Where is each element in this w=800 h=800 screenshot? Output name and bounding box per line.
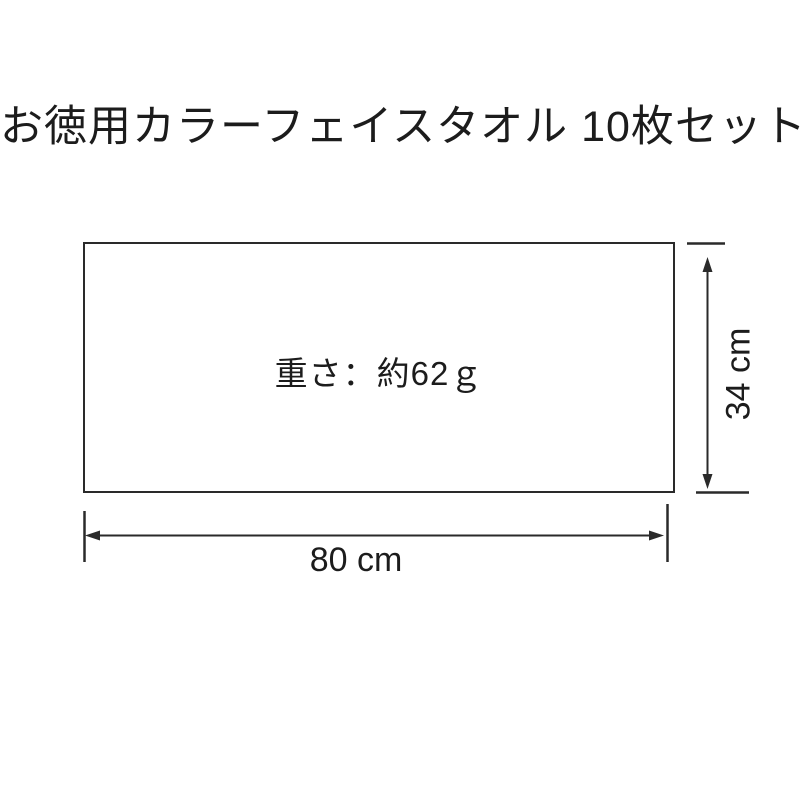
product-title: お徳用カラーフェイスタオル 10枚セット: [0, 103, 800, 152]
weight-label: 重さ：約62ｇ: [275, 347, 484, 395]
width-dimension-label: 80 cm: [310, 541, 403, 580]
product-spec-diagram: お徳用カラーフェイスタオル 10枚セット 重さ：約62ｇ 80 cm 34 cm: [0, 0, 800, 800]
height-dimension-label: 34 cm: [720, 328, 759, 421]
width-arrowhead-right-icon: [649, 531, 664, 541]
towel-outline-rect: 重さ：約62ｇ: [83, 242, 675, 493]
width-arrowhead-left-icon: [85, 531, 100, 541]
height-arrowhead-bottom-icon: [703, 474, 713, 489]
height-arrowhead-top-icon: [703, 257, 713, 272]
